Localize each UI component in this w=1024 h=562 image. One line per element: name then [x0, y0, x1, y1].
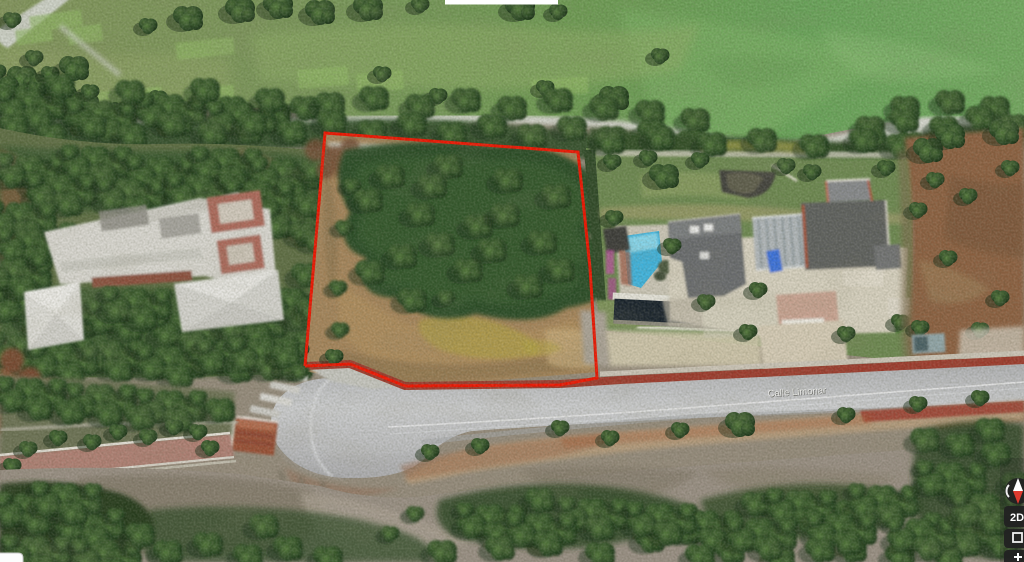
svg-text:2D: 2D [1010, 512, 1024, 524]
